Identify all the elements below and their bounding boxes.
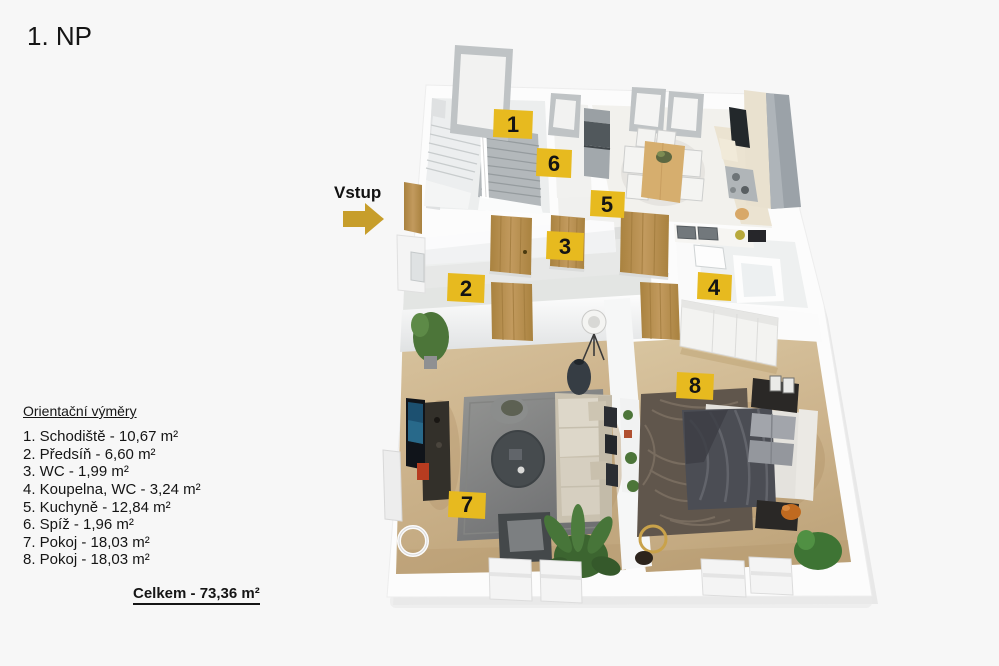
svg-text:7: 7 [461,492,473,517]
svg-text:1: 1 [507,112,519,137]
svg-text:3: 3 [559,234,571,259]
svg-text:6: 6 [548,151,560,176]
svg-text:5: 5 [601,192,613,217]
svg-text:8: 8 [689,373,701,398]
svg-text:2: 2 [460,276,472,301]
svg-text:4: 4 [708,275,721,300]
